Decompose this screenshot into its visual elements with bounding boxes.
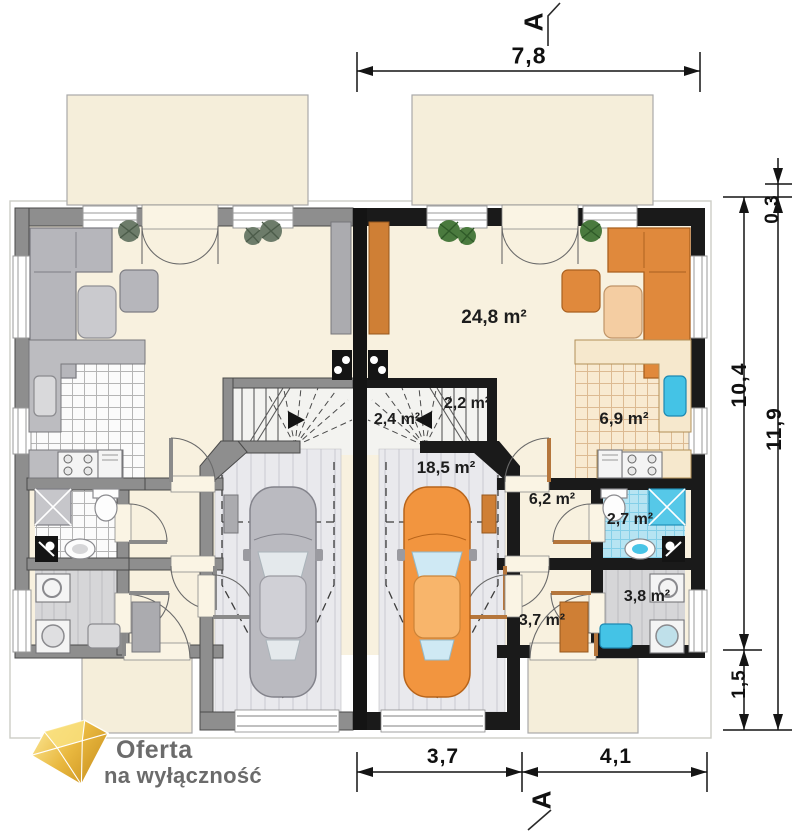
dim-bottom-garage: 3,7 (427, 745, 459, 769)
section-marker-bottom: A (527, 791, 558, 810)
room-label-living: 24,8 m² (461, 307, 526, 329)
room-label-garage: 18,5 m² (417, 458, 476, 478)
room-label-entry: 3,7 m² (519, 612, 565, 630)
dim-right-house-depth: 10,4 (728, 363, 752, 408)
left-unit (13, 95, 353, 733)
room-label-bathroom: 2,7 m² (607, 511, 653, 529)
logo-text-line2: na wyłączność (104, 763, 262, 789)
logo-text-line1: Oferta (116, 736, 193, 765)
room-label-stairs-lower: 2,4 m² (374, 411, 420, 429)
floorplan-page: A A 7,8 3,7 4,1 0,3 10,4 11,9 1,5 24,8 m… (0, 0, 792, 831)
dim-top-width: 7,8 (512, 43, 547, 70)
dim-right-roof-offset: 0,3 (762, 194, 784, 223)
section-line-bottom (528, 810, 551, 830)
party-wall (353, 208, 367, 730)
room-label-kitchen: 6,9 m² (599, 409, 648, 429)
dim-bottom-house: 4,1 (600, 745, 632, 769)
dim-right-porch-depth: 1,5 (729, 669, 751, 698)
section-marker-top: A (519, 13, 550, 32)
room-label-stairs-upper: 2,2 m² (444, 395, 490, 413)
room-label-utility: 3,8 m² (624, 588, 670, 606)
dim-right-total-depth: 11,9 (763, 407, 787, 451)
section-line-top (548, 3, 560, 46)
room-label-hall: 6,2 m² (529, 491, 575, 509)
